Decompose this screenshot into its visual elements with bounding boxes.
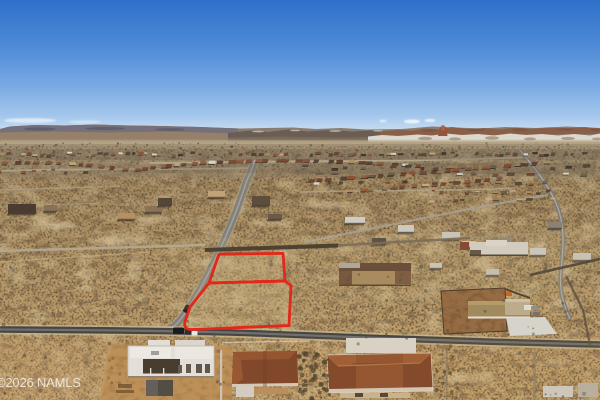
- svg-text:©2026 NAMLS: ©2026 NAMLS: [0, 375, 81, 390]
